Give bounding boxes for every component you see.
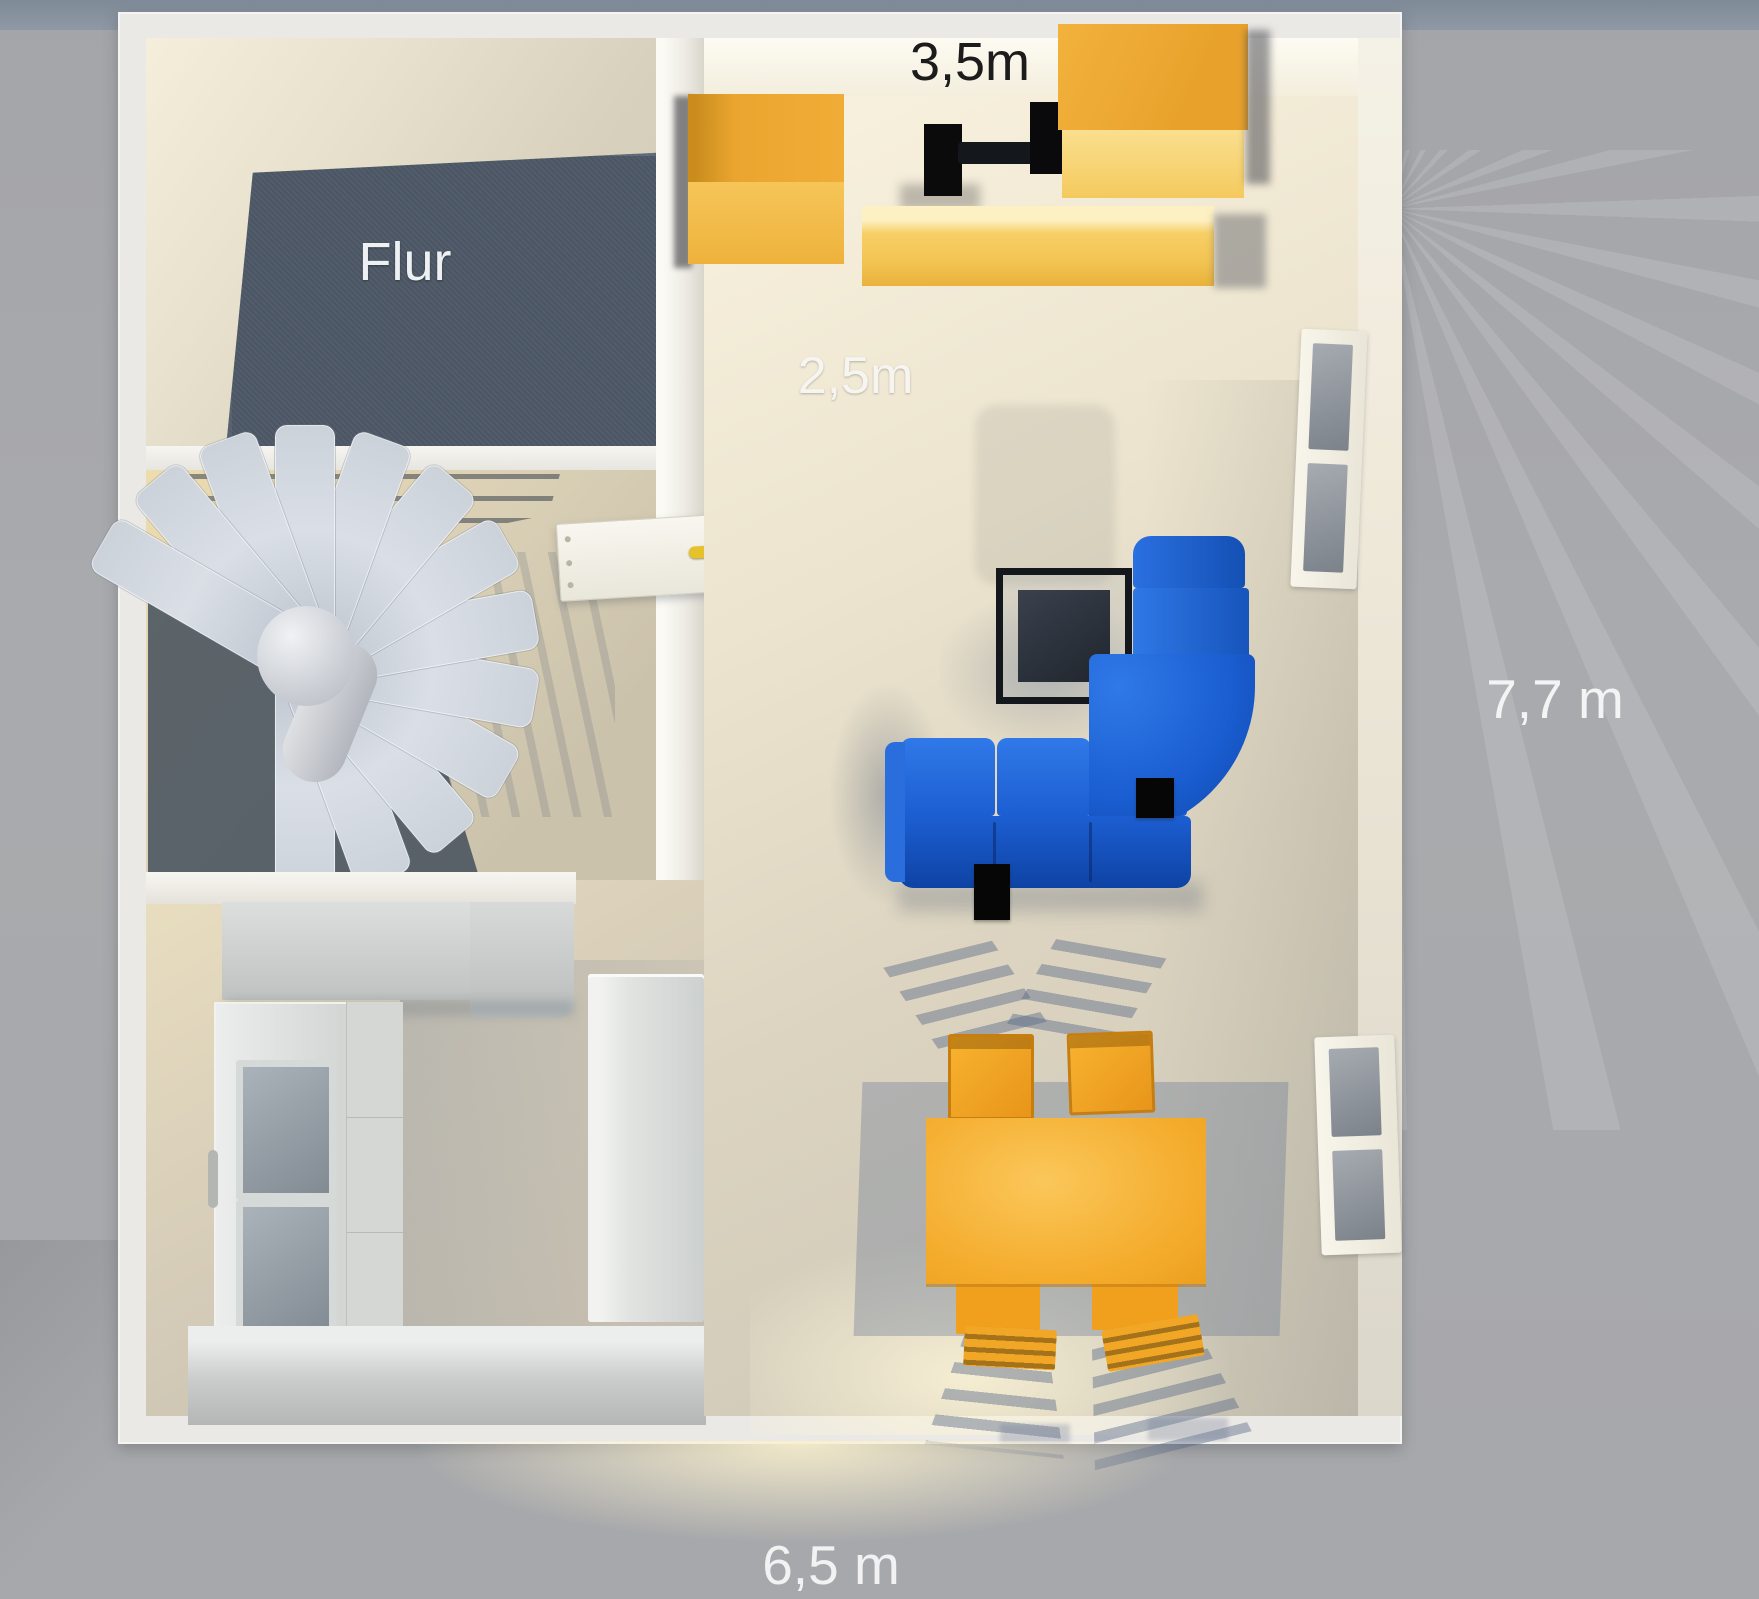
window-pane xyxy=(1303,463,1348,573)
door-hinge xyxy=(566,560,572,566)
wardrobe-right-shadow xyxy=(1246,30,1270,184)
flur-carpet-floor xyxy=(226,152,672,448)
light-rays xyxy=(1398,150,1759,1130)
light-spill xyxy=(420,1441,1180,1541)
window-lower xyxy=(1314,1035,1402,1256)
room-label-flur: Flur xyxy=(300,230,510,294)
drawer-unit xyxy=(346,1002,403,1354)
door-hinge xyxy=(565,536,571,542)
sofa-headrest xyxy=(1133,536,1245,588)
sofa-seat-front xyxy=(899,816,1191,888)
speaker-box xyxy=(1136,778,1174,818)
wardrobe-left-front xyxy=(688,182,844,264)
dimension-label-hall: 2,5m xyxy=(768,346,943,406)
wardrobe-right-front xyxy=(1062,130,1244,198)
cabinet-glass-pane xyxy=(236,1060,336,1200)
dimension-label-top: 3,5m xyxy=(860,30,1080,94)
cabinet-handle xyxy=(208,1150,218,1208)
dining-chair xyxy=(1067,1031,1156,1116)
tv-soundbar xyxy=(958,142,1034,164)
dimension-label-bottom: 6,5 m xyxy=(716,1534,946,1596)
spiral-stair-center-pole xyxy=(257,606,355,706)
sofa-cushion xyxy=(901,738,995,816)
speaker-box xyxy=(974,864,1010,920)
base-counter xyxy=(188,1326,706,1425)
window-pane xyxy=(1329,1047,1382,1137)
tv-speaker-box xyxy=(924,124,962,196)
bench xyxy=(862,206,1214,286)
bench-shadow xyxy=(1214,214,1266,288)
corner-sofa xyxy=(885,530,1257,892)
floor-shadow-mark xyxy=(1148,1418,1228,1440)
floorplan-3d-render: Flur xyxy=(0,0,1759,1599)
fridge xyxy=(588,974,704,1322)
door-hinge xyxy=(567,582,573,588)
kitchen-wall xyxy=(146,872,576,904)
drawer-seam xyxy=(347,1232,403,1233)
wardrobe-right-top xyxy=(1058,24,1248,130)
dining-chair xyxy=(948,1034,1034,1120)
window-upper xyxy=(1290,329,1367,590)
wardrobe-left-top xyxy=(688,94,844,182)
dining-chair-back xyxy=(963,1326,1057,1371)
sofa-cushion xyxy=(997,738,1091,816)
dimension-label-right: 7,7 m xyxy=(1440,666,1670,732)
window-pane xyxy=(1332,1149,1385,1241)
drawer-seam xyxy=(347,1117,403,1118)
sofa-armrest xyxy=(885,742,905,882)
window-pane xyxy=(1308,343,1353,451)
dining-table xyxy=(926,1118,1206,1284)
glass-cabinet xyxy=(214,1002,350,1358)
sofa-cushion-seam xyxy=(1089,822,1092,882)
cabinet-glass-pane xyxy=(236,1200,336,1340)
